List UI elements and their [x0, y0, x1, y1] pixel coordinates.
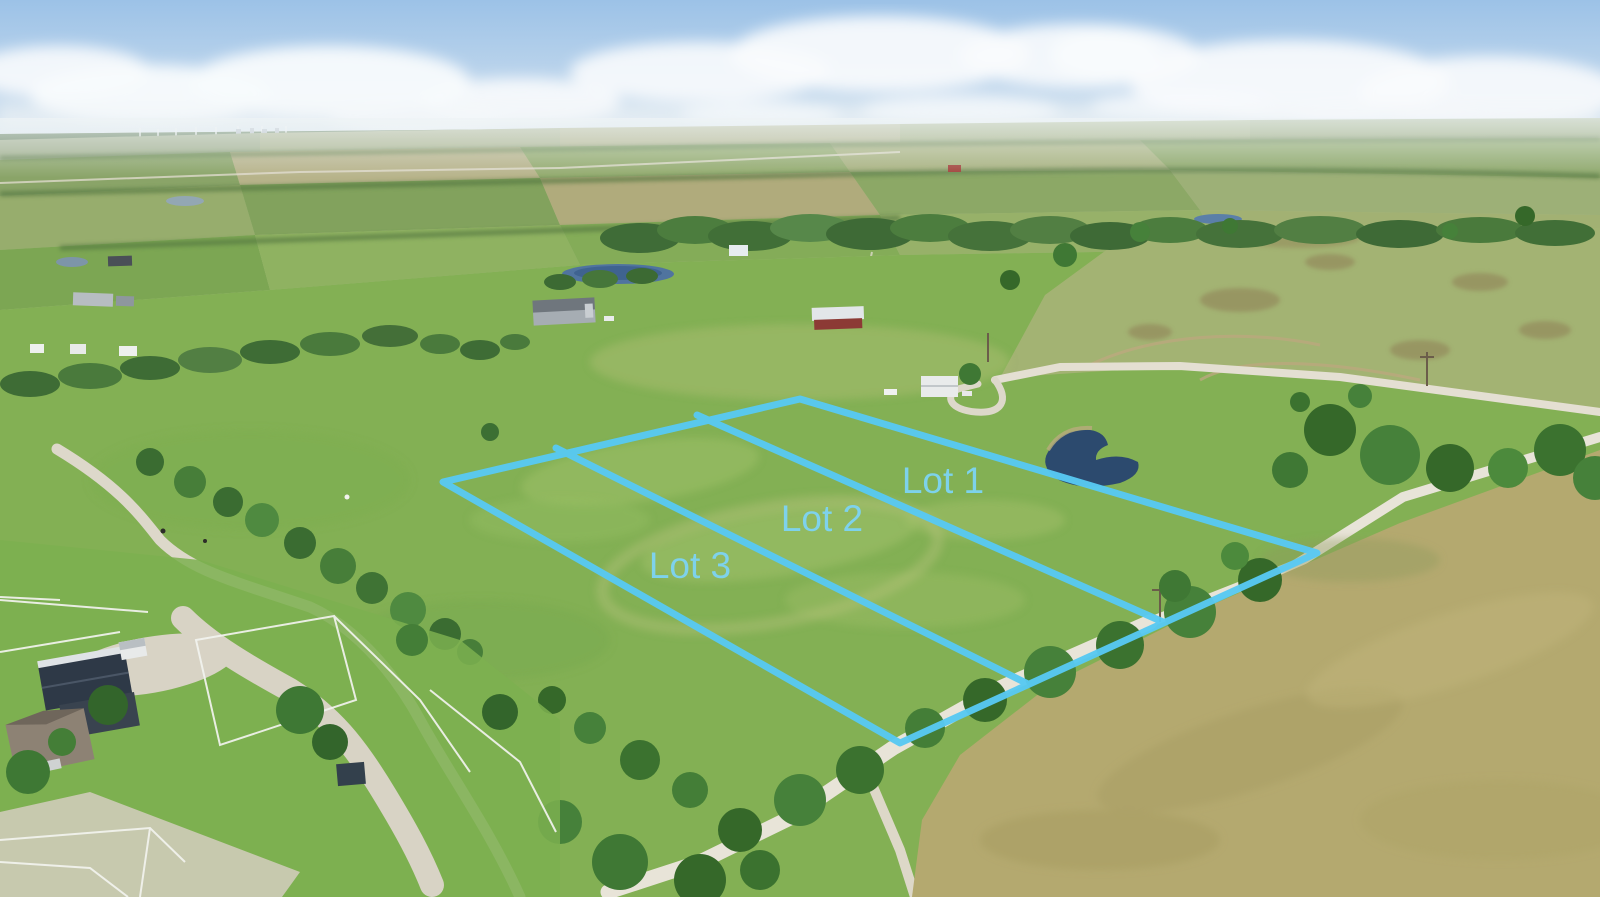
- vehicle-dot: [604, 316, 614, 321]
- lot-3-label: Lot 3: [649, 545, 731, 586]
- dark-roof-house-distant: [108, 256, 132, 267]
- atmospheric-haze: [0, 118, 1600, 178]
- dark-shed: [336, 762, 366, 786]
- lone-tree: [481, 423, 499, 441]
- lot-2-label: Lot 2: [781, 498, 863, 539]
- greenhouse: [729, 245, 748, 256]
- pond-gray: [166, 196, 204, 206]
- aerial-photo: Lot 1 Lot 2 Lot 3: [0, 0, 1600, 897]
- shed-b: [70, 344, 86, 354]
- pond-small-left: [56, 257, 88, 267]
- shed-c: [119, 346, 137, 356]
- lot-1-label: Lot 1: [902, 460, 984, 501]
- red-barn: [812, 306, 865, 330]
- gray-metal-building: [532, 297, 595, 325]
- shed-a: [30, 344, 44, 353]
